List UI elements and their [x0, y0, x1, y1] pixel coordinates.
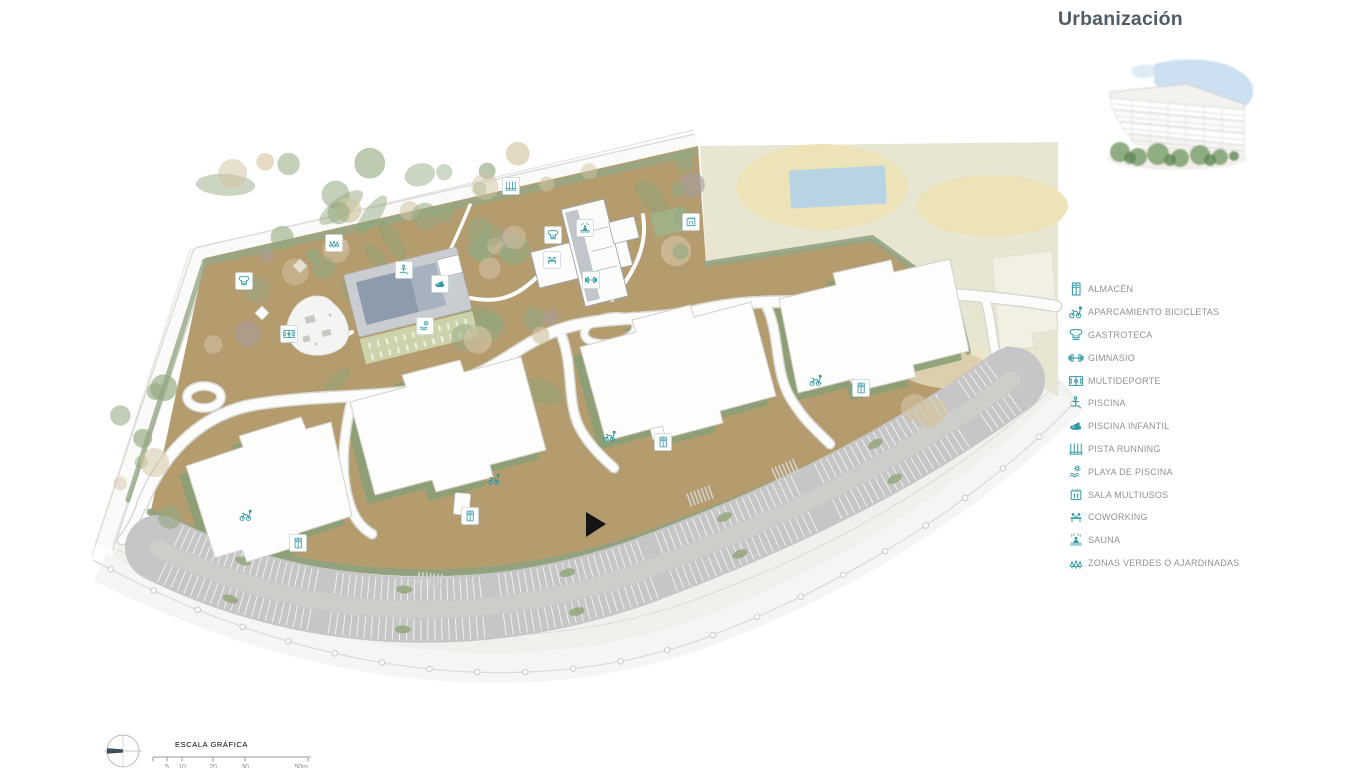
legend-item-label: SALA MULTIUSOS [1088, 490, 1168, 500]
sauna-icon [1064, 532, 1088, 548]
almacen-icon [1064, 281, 1088, 297]
gastroteca-icon [1064, 327, 1088, 343]
gastroteca-map-icon [236, 273, 253, 290]
playa-de-piscina-map-icon [417, 318, 434, 335]
piscina-infantil-icon [1064, 418, 1088, 434]
almacen-map-icon [853, 380, 870, 397]
legend-title: Urbanización [1058, 8, 1360, 31]
building-rendering [1092, 54, 1262, 174]
zonas-verdes-map-icon [326, 235, 343, 252]
page: Urbanización [0, 0, 1366, 768]
almacen-map-icon [655, 434, 672, 451]
scale-tick-label: 20 [209, 764, 217, 768]
piscina-map-icon [396, 262, 413, 279]
legend-item-label: PLAYA DE PISCINA [1088, 467, 1173, 477]
legend-item-label: GIMNASIO [1088, 353, 1135, 363]
legend-item-label: APARCAMIENTO BICICLETAS [1088, 307, 1219, 317]
legend-item-multideporte: MULTIDEPORTE [1064, 369, 1360, 392]
legend-item-pista-running: PISTA RUNNING [1064, 438, 1360, 461]
legend-item-label: GASTROTECA [1088, 330, 1153, 340]
pista-running-map-icon [503, 178, 520, 195]
legend-item-gimnasio: GIMNASIO [1064, 346, 1360, 369]
coworking-icon [1064, 509, 1088, 525]
multideporte-icon [1064, 373, 1088, 389]
zonas-verdes-icon [1064, 555, 1088, 571]
gastroteca-map-icon [545, 227, 562, 244]
legend-item-label: COWORKING [1088, 512, 1148, 522]
scale-bar: ESCALA GRÁFICA 510203050m [103, 731, 321, 768]
legend-item-almacen: ALMACÉN [1064, 278, 1360, 301]
legend-item-coworking: COWORKING [1064, 506, 1360, 529]
sala-multiusos-icon [1064, 487, 1088, 503]
scale-tick-label: 10 [178, 764, 186, 768]
gimnasio-map-icon [583, 272, 600, 289]
playa-de-piscina-icon [1064, 464, 1088, 480]
lawn-ellipse [916, 175, 1068, 237]
almacen-map-icon [290, 535, 307, 552]
sala-multiusos-map-icon [683, 214, 700, 231]
scale-bar-ruler: 510203050m [151, 751, 321, 768]
legend-item-label: PISCINA [1088, 398, 1126, 408]
piscina-icon [1064, 395, 1088, 411]
legend-item-label: ZONAS VERDES O AJARDINADAS [1088, 558, 1240, 568]
legend-item-label: SAUNA [1088, 535, 1120, 545]
legend-item-label: ALMACÉN [1088, 284, 1133, 294]
almacen-map-icon [462, 508, 479, 525]
gimnasio-icon [1064, 350, 1088, 366]
aparcamiento-bicicletas-icon [1064, 304, 1088, 320]
legend-item-label: PISTA RUNNING [1088, 444, 1161, 454]
north-compass-icon [103, 731, 143, 768]
legend-item-piscina-infantil: PISCINA INFANTIL [1064, 415, 1360, 438]
multideporte-map-icon [281, 326, 298, 343]
legend-item-label: MULTIDEPORTE [1088, 376, 1161, 386]
legend-panel: Urbanización [1058, 8, 1360, 574]
legend-item-playa-de-piscina: PLAYA DE PISCINA [1064, 460, 1360, 483]
coworking-map-icon [544, 252, 561, 269]
scale-tick-label: 30 [241, 764, 249, 768]
sauna-map-icon [577, 220, 594, 237]
legend-item-gastroteca: GASTROTECA [1064, 324, 1360, 347]
legend-list: ALMACÉNAPARCAMIENTO BICICLETASGASTROTECA… [1064, 278, 1360, 574]
legend-item-zonas-verdes: ZONAS VERDES O AJARDINADAS [1064, 552, 1360, 575]
pista-running-icon [1064, 441, 1088, 457]
legend-item-label: PISCINA INFANTIL [1088, 421, 1170, 431]
piscina-infantil-map-icon [432, 276, 449, 293]
scale-tick-label: 5 [165, 764, 169, 768]
scale-tick-label: 50m [294, 764, 308, 768]
water-basin [789, 166, 887, 209]
legend-item-aparcamiento-bicicletas: APARCAMIENTO BICICLETAS [1064, 301, 1360, 324]
legend-item-sala-multiusos: SALA MULTIUSOS [1064, 483, 1360, 506]
legend-item-piscina: PISCINA [1064, 392, 1360, 415]
scale-bar-title: ESCALA GRÁFICA [175, 740, 321, 749]
legend-item-sauna: SAUNA [1064, 529, 1360, 552]
